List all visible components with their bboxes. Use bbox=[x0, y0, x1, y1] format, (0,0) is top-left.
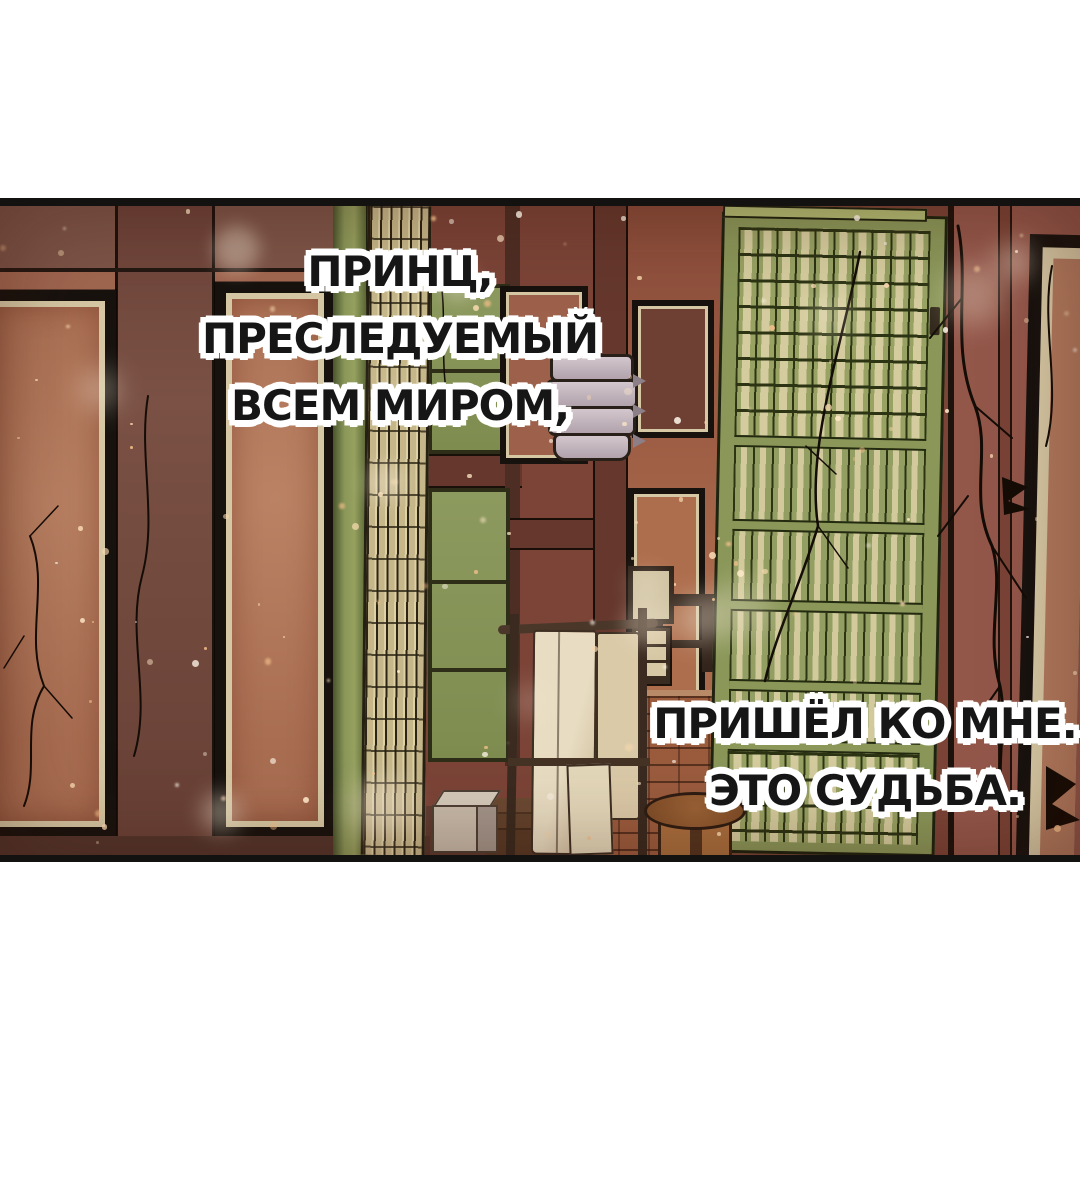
caption-text: ПРИШЁЛ КО МНЕ. bbox=[653, 699, 1076, 748]
narration-caption-2: ПРИШЁЛ КО МНЕ. ПРИШЁЛ КО МНЕ. ЭТО СУДЬБА… bbox=[648, 690, 1080, 824]
lantern-fin bbox=[633, 404, 646, 418]
green-window-lower bbox=[428, 488, 510, 762]
lattice-grid-top bbox=[734, 227, 930, 439]
caption-text: ПРЕСЛЕДУЕМЫЙ bbox=[202, 314, 598, 363]
towel-rack bbox=[506, 606, 656, 855]
door-panel bbox=[0, 307, 99, 821]
door-hinge bbox=[929, 307, 940, 335]
caption-line: ПРИНЦ, ПРИНЦ, bbox=[195, 238, 605, 305]
storage-box bbox=[432, 790, 498, 854]
snow-particle bbox=[449, 219, 453, 223]
caption-line: ПРЕСЛЕДУЕМЫЙ ПРЕСЛЕДУЕМЫЙ bbox=[195, 305, 605, 372]
caption-text: ВСЕМ МИРОМ, bbox=[231, 381, 569, 430]
panel-border-bottom bbox=[0, 855, 1080, 862]
caption-line: ВСЕМ МИРОМ, ВСЕМ МИРОМ, bbox=[195, 372, 605, 439]
caption-line: ПРИШЁЛ КО МНЕ. ПРИШЁЛ КО МНЕ. bbox=[648, 690, 1080, 757]
caption-line: ЭТО СУДЬБА. ЭТО СУДЬБА. bbox=[648, 757, 1080, 824]
snow-particle bbox=[431, 216, 436, 221]
rack-post bbox=[506, 614, 519, 855]
caption-text: ПРИНЦ, bbox=[307, 247, 492, 296]
page: ПРИНЦ, ПРИНЦ, ПРЕСЛЕДУЕМЫЙ ПРЕСЛЕДУЕМЫЙ … bbox=[0, 0, 1080, 1198]
narration-caption-1: ПРИНЦ, ПРИНЦ, ПРЕСЛЕДУЕМЫЙ ПРЕСЛЕДУЕМЫЙ … bbox=[195, 238, 605, 439]
towel-3 bbox=[566, 763, 613, 855]
lantern-fin bbox=[633, 434, 646, 448]
frame-panel bbox=[641, 309, 705, 429]
lantern-fin bbox=[633, 374, 646, 388]
panel-border-top bbox=[0, 198, 1080, 206]
left-door-1 bbox=[0, 290, 116, 838]
box-side bbox=[476, 805, 498, 853]
caption-text: ЭТО СУДЬБА. bbox=[709, 766, 1021, 815]
box-front bbox=[432, 805, 478, 853]
